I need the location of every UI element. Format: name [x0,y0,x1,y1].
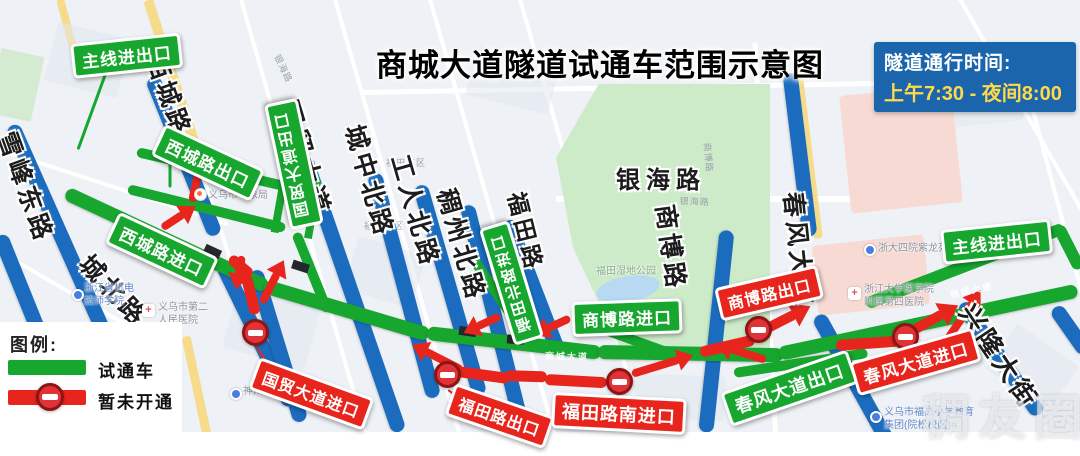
road-label-yinhailu: 银海路 [616,160,706,195]
gate-pointer-line [169,164,172,188]
poi-technician-college: 浙江省机电 技师学院 [84,283,134,308]
road-label-xuefengdonglu: 雪峰东路 [0,126,64,247]
no-entry-icon [745,316,772,343]
poi-line: 附属第四医院 [864,297,934,310]
poi-dot-icon [870,411,882,423]
route-name-on-road: 商城大道 [545,349,589,363]
poi-line: 浙江大学医学院 [864,284,934,297]
gate-label-futianlunan-entrance: 福田路南进口 [551,392,687,435]
poi-zilongyuan: 浙大四院紫龙苑 [878,243,948,256]
gate-label-shangbolu-entrance: 商博路进口 [571,298,682,337]
poi-dot-icon [72,289,84,301]
poi-line: 浙江省机电 [84,283,134,296]
info-box-time: 上午7:30 - 夜间8:00 [884,77,1066,106]
weather-poi-icon [194,188,207,201]
gate-label-guomao-entrance: 国贸大道进口 [248,357,374,431]
no-entry-icon [242,319,269,346]
route-open-ramp [1053,223,1080,271]
map-canvas: 银海路 银海路 商博路 福田三区 福田二区 [0,0,1080,456]
legend-no-entry-icon [36,383,64,411]
hospital-cross-icon: + [142,304,155,317]
legend-heading: 图例: [10,331,58,357]
legend-open-bar [8,360,86,375]
poi-dot-icon [864,244,876,256]
legend-open-label: 试通车 [98,357,155,382]
legend-closed-label: 暂未开通 [98,388,174,413]
gate-label-mainline-east: 主线进出口 [940,219,1053,265]
street-name-small: 银海路 [271,52,296,85]
no-entry-icon [606,368,633,395]
route-closed-segment [545,374,607,388]
poi-line: 技师学院 [84,296,134,309]
info-box-heading: 隧道通行时间: [884,48,1066,75]
info-box: 隧道通行时间: 上午7:30 - 夜间8:00 [874,42,1076,112]
watermark: 稠友圈 [922,378,1080,448]
route-closed-segment [505,370,547,382]
hospital-cross-icon: + [848,287,861,300]
page-title: 商城大道隧道试通车范围示意图 [376,40,824,85]
poi-line: 义乌市第二 [158,302,208,315]
poi-wetland-park: 福田湿地公园 [596,266,656,279]
poi-university-hospital: 浙江大学医学院 附属第四医院 [864,284,934,309]
park-area-small [0,48,44,122]
poi-dot-icon [230,388,242,400]
